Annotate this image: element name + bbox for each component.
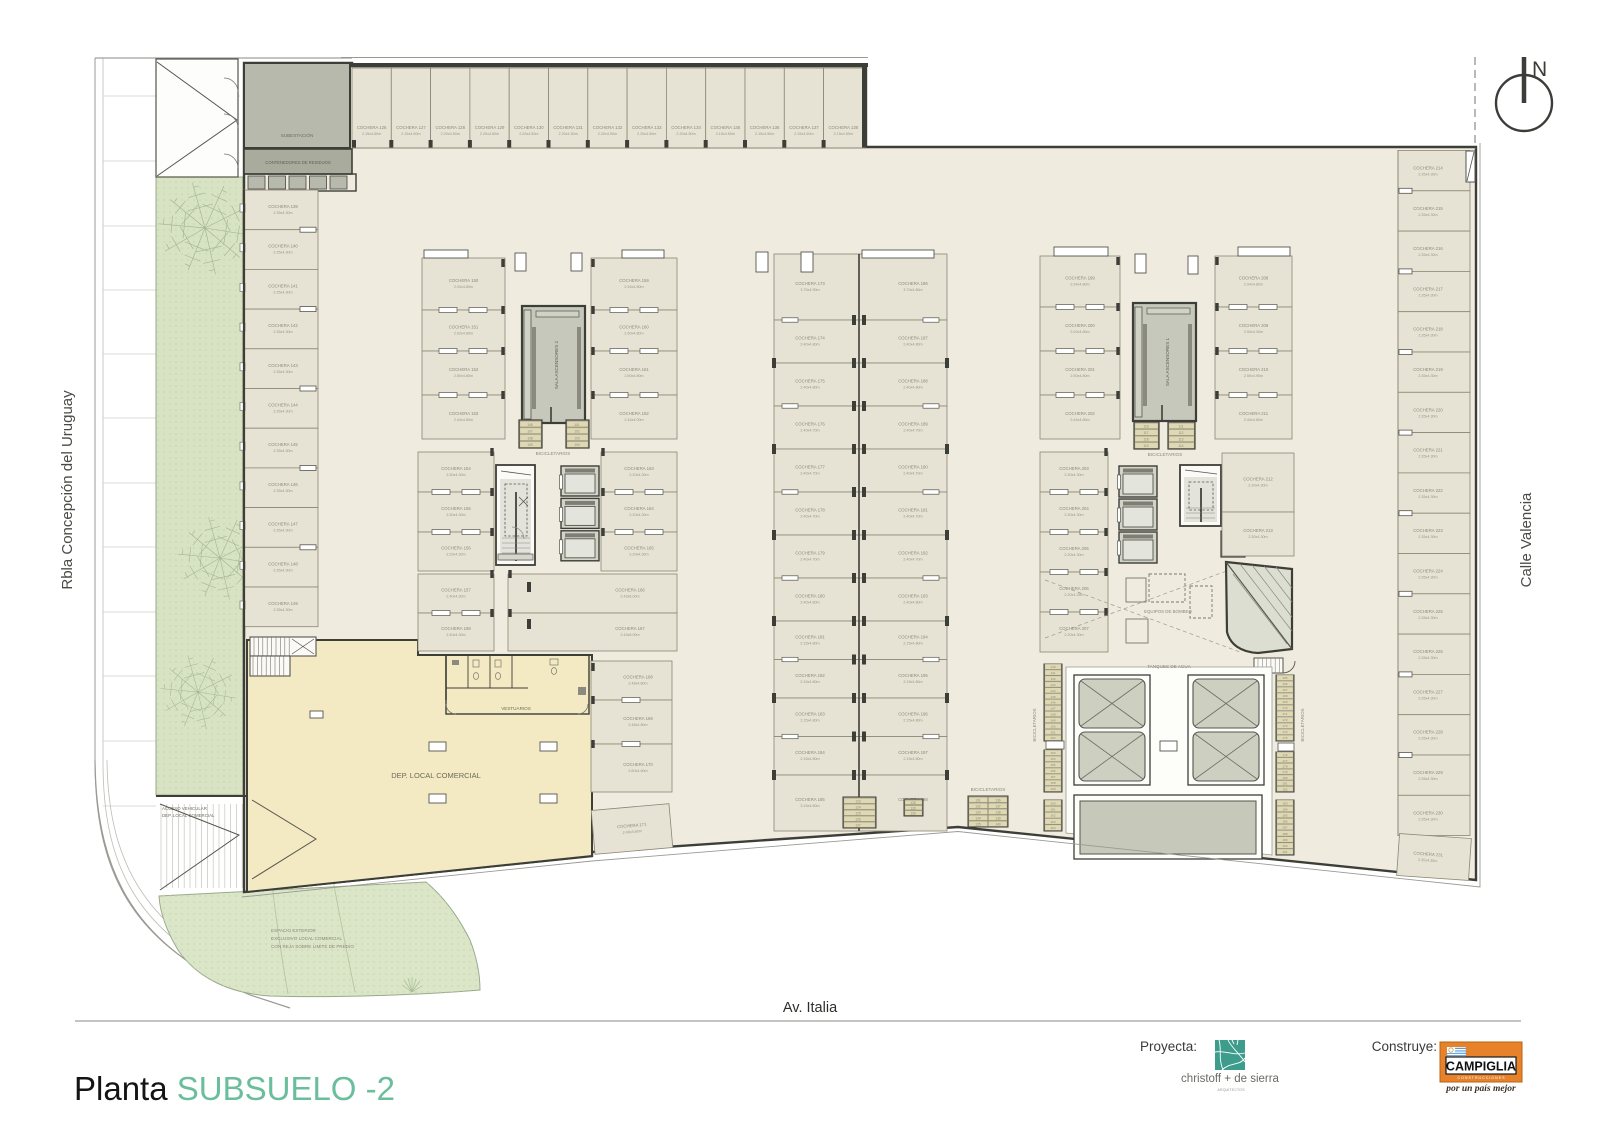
svg-text:159: 159 [1050, 787, 1055, 791]
svg-text:COCHERA 194: COCHERA 194 [898, 634, 928, 639]
svg-text:2.44x4.80m: 2.44x4.80m [454, 418, 473, 422]
svg-text:2.30x4.30m: 2.30x4.30m [1248, 484, 1267, 488]
svg-text:141: 141 [1050, 671, 1055, 675]
svg-text:COCHERA 138: COCHERA 138 [828, 125, 858, 130]
svg-text:2.35x4.30m: 2.35x4.30m [1418, 414, 1437, 418]
svg-text:COCHERA 185: COCHERA 185 [795, 797, 825, 802]
svg-text:COCHERA 187: COCHERA 187 [898, 336, 928, 341]
svg-text:177: 177 [1282, 759, 1287, 763]
svg-text:Av. Italia: Av. Italia [783, 1000, 838, 1016]
svg-text:COCHERA 192: COCHERA 192 [898, 551, 928, 556]
svg-text:DEP. LOCAL COMERCIAL: DEP. LOCAL COMERCIAL [162, 813, 215, 818]
svg-text:2.15x4.80m: 2.15x4.80m [800, 680, 819, 684]
svg-text:2.35x4.30m: 2.35x4.30m [273, 608, 292, 612]
svg-text:130: 130 [910, 812, 916, 816]
svg-text:BICICLETARIOS: BICICLETARIOS [1300, 708, 1305, 741]
svg-text:COCHERA 184: COCHERA 184 [795, 750, 825, 755]
svg-text:2.50x4.80m: 2.50x4.80m [624, 374, 643, 378]
svg-text:SALA ASCENSORES 2: SALA ASCENSORES 2 [554, 340, 559, 389]
svg-text:SALA ASCENSORES 1: SALA ASCENSORES 1 [1165, 337, 1170, 386]
svg-text:2.35x4.30m: 2.35x4.30m [1418, 455, 1437, 459]
svg-text:2.15x4.50m: 2.15x4.50m [362, 132, 381, 136]
svg-text:2.60x4.60m: 2.60x4.60m [628, 769, 647, 773]
svg-text:COCHERA 190: COCHERA 190 [898, 465, 928, 470]
svg-text:COCHERA 217: COCHERA 217 [1413, 286, 1443, 291]
svg-text:2.40x4.30m: 2.40x4.30m [446, 633, 465, 637]
svg-text:2.43x6.00m: 2.43x6.00m [620, 633, 639, 637]
svg-text:COCHERA 220: COCHERA 220 [1413, 407, 1443, 412]
svg-text:COCHERA 197: COCHERA 197 [898, 750, 928, 755]
svg-text:148: 148 [1050, 713, 1055, 717]
svg-text:COCHERA 206: COCHERA 206 [1059, 586, 1089, 591]
svg-text:EQUIPOS DE BOMBEO: EQUIPOS DE BOMBEO [1144, 609, 1192, 614]
svg-text:2.35x4.30m: 2.35x4.30m [273, 568, 292, 572]
svg-text:2.44x4.00m: 2.44x4.00m [624, 418, 643, 422]
svg-text:2.94x4.80m: 2.94x4.80m [454, 285, 473, 289]
svg-text:135: 135 [975, 822, 981, 826]
svg-text:COCHERA 178: COCHERA 178 [795, 508, 825, 513]
svg-text:COCHERA 161: COCHERA 161 [619, 367, 649, 372]
svg-text:2.50x4.30m: 2.50x4.30m [1244, 330, 1263, 334]
svg-text:COCHERA 129: COCHERA 129 [475, 125, 505, 130]
svg-text:109: 109 [527, 443, 533, 447]
svg-text:COCHERA 183: COCHERA 183 [795, 711, 825, 716]
svg-text:2.20x4.50m: 2.20x4.50m [676, 132, 695, 136]
svg-text:2.15x4.50m: 2.15x4.50m [401, 132, 420, 136]
svg-text:175: 175 [1282, 736, 1287, 740]
svg-text:COCHERA 193: COCHERA 193 [898, 594, 928, 599]
svg-text:133: 133 [975, 810, 981, 814]
svg-text:COCHERA 212: COCHERA 212 [1243, 477, 1273, 482]
svg-text:COCHERA 126: COCHERA 126 [357, 125, 387, 130]
svg-text:171: 171 [1282, 712, 1287, 716]
svg-text:COCHERA 131: COCHERA 131 [553, 125, 583, 130]
svg-text:2.30x4.30m: 2.30x4.30m [446, 513, 465, 517]
svg-text:2.40x4.30m: 2.40x4.30m [446, 595, 465, 599]
svg-text:137: 137 [995, 804, 1001, 808]
svg-text:COCHERA 166: COCHERA 166 [615, 588, 645, 593]
svg-text:2.35x4.30m: 2.35x4.30m [1418, 374, 1437, 378]
svg-text:149: 149 [1050, 719, 1055, 723]
svg-text:107: 107 [527, 430, 533, 434]
svg-text:COCHERA 199: COCHERA 199 [1065, 276, 1095, 281]
svg-text:2.20x4.30m: 2.20x4.30m [629, 553, 648, 557]
svg-text:COCHERA 177: COCHERA 177 [795, 465, 825, 470]
svg-text:BICICLETARIOS: BICICLETARIOS [1148, 452, 1183, 457]
svg-text:CON REJA SOBRE LIMITE DE PREDI: CON REJA SOBRE LIMITE DE PREDIO [271, 944, 354, 949]
svg-text:COCHERA 141: COCHERA 141 [268, 283, 298, 288]
svg-text:COCHERA 207: COCHERA 207 [1059, 626, 1089, 631]
svg-text:182: 182 [1282, 787, 1287, 791]
svg-text:191: 191 [1282, 850, 1287, 854]
svg-text:2.20x4.50m: 2.20x4.50m [519, 132, 538, 136]
svg-text:2.15x4.50m: 2.15x4.50m [794, 132, 813, 136]
svg-text:2.43x6.00m: 2.43x6.00m [620, 595, 639, 599]
svg-text:COCHERA 218: COCHERA 218 [1413, 327, 1443, 332]
svg-text:140: 140 [995, 822, 1001, 826]
svg-text:185: 185 [1282, 814, 1287, 818]
svg-text:COCHERA 145: COCHERA 145 [268, 442, 298, 447]
svg-text:COCHERA 148: COCHERA 148 [268, 561, 298, 566]
svg-text:2.20x4.50m: 2.20x4.50m [559, 132, 578, 136]
svg-text:2.35x4.30m: 2.35x4.30m [1418, 656, 1437, 660]
svg-text:151: 151 [1050, 730, 1055, 734]
svg-text:2.15x4.80m: 2.15x4.80m [903, 757, 922, 761]
svg-text:2.35x4.30m: 2.35x4.30m [1418, 495, 1437, 499]
svg-text:2.35x4.30m: 2.35x4.30m [273, 211, 292, 215]
svg-text:2.48x4.80m: 2.48x4.80m [628, 682, 647, 686]
svg-text:2.40x4.70m: 2.40x4.70m [800, 472, 819, 476]
svg-text:124: 124 [855, 805, 861, 809]
svg-text:Planta SUBSUELO -2: Planta SUBSUELO -2 [74, 1070, 395, 1107]
svg-text:CAMPIGLIA: CAMPIGLIA [1446, 1060, 1516, 1074]
svg-text:172: 172 [1282, 718, 1287, 722]
svg-text:2.20x4.50m: 2.20x4.50m [598, 132, 617, 136]
svg-text:2.40x4.80m: 2.40x4.80m [903, 343, 922, 347]
svg-text:VESTUARIOS: VESTUARIOS [501, 706, 531, 711]
svg-text:COCHERA 215: COCHERA 215 [1413, 206, 1443, 211]
svg-text:2.50x4.80m: 2.50x4.80m [454, 374, 473, 378]
svg-text:COCHERA 175: COCHERA 175 [795, 379, 825, 384]
svg-text:2.30x4.30m: 2.30x4.30m [1248, 535, 1267, 539]
svg-text:2.40x4.70m: 2.40x4.70m [903, 472, 922, 476]
svg-text:2.35x4.30m: 2.35x4.30m [1418, 173, 1437, 177]
svg-text:COCHERA 203: COCHERA 203 [1059, 466, 1089, 471]
svg-text:por un país mejor: por un país mejor [1445, 1084, 1516, 1094]
svg-text:COCHERA 186: COCHERA 186 [898, 281, 928, 286]
svg-text:2.40x4.70m: 2.40x4.70m [800, 429, 819, 433]
svg-text:2.20x4.50m: 2.20x4.50m [441, 132, 460, 136]
svg-text:161: 161 [1050, 808, 1055, 812]
svg-text:187: 187 [1282, 826, 1287, 830]
svg-text:COCHERA 226: COCHERA 226 [1413, 649, 1443, 654]
svg-text:150: 150 [1050, 724, 1055, 728]
svg-text:2.40x4.70m: 2.40x4.70m [903, 429, 922, 433]
svg-text:179: 179 [1282, 770, 1287, 774]
svg-text:COCHERA 219: COCHERA 219 [1413, 367, 1443, 372]
svg-text:152: 152 [1050, 736, 1055, 740]
svg-text:101: 101 [574, 423, 580, 427]
svg-text:2.20x4.30m: 2.20x4.30m [629, 473, 648, 477]
svg-text:3.15x4.80m: 3.15x4.80m [800, 804, 819, 808]
svg-text:180: 180 [1282, 776, 1287, 780]
svg-text:COCHERA 200: COCHERA 200 [1065, 323, 1095, 328]
svg-text:COCHERA 139: COCHERA 139 [268, 204, 298, 209]
svg-text:COCHERA 130: COCHERA 130 [514, 125, 544, 130]
svg-text:COCHERA 152: COCHERA 152 [449, 367, 479, 372]
svg-text:COCHERA 143: COCHERA 143 [268, 363, 298, 368]
svg-text:155: 155 [1050, 763, 1055, 767]
svg-text:167: 167 [1282, 688, 1287, 692]
svg-text:COCHERA 159: COCHERA 159 [619, 278, 649, 283]
svg-text:COCHERA 134: COCHERA 134 [671, 125, 701, 130]
svg-text:COCHERA 162: COCHERA 162 [619, 411, 649, 416]
svg-text:COCHERA 179: COCHERA 179 [795, 551, 825, 556]
svg-text:COCHERA 209: COCHERA 209 [1239, 323, 1269, 328]
svg-text:COCHERA 182: COCHERA 182 [795, 673, 825, 678]
svg-text:COCHERA 150: COCHERA 150 [449, 278, 479, 283]
svg-text:2.20x4.30m: 2.20x4.30m [1064, 633, 1083, 637]
svg-text:168: 168 [1282, 694, 1287, 698]
svg-text:111: 111 [1179, 425, 1184, 429]
svg-text:EXCLUSIVO LOCAL COMERCIAL: EXCLUSIVO LOCAL COMERCIAL [271, 936, 342, 941]
svg-text:SUBESTACIÓN: SUBESTACIÓN [281, 132, 314, 138]
svg-text:108: 108 [527, 436, 533, 440]
svg-text:COCHERA 205: COCHERA 205 [1059, 546, 1089, 551]
svg-text:COCHERA 222: COCHERA 222 [1413, 488, 1443, 493]
svg-text:163: 163 [1050, 820, 1055, 824]
svg-text:COCHERA 228: COCHERA 228 [1413, 730, 1443, 735]
svg-text:COCHERA 210: COCHERA 210 [1239, 367, 1269, 372]
svg-text:COCHERA 155: COCHERA 155 [441, 506, 471, 511]
svg-text:COCHERA 146: COCHERA 146 [268, 482, 298, 487]
svg-text:156: 156 [1050, 769, 1055, 773]
svg-text:188: 188 [1282, 832, 1287, 836]
svg-text:COCHERA 195: COCHERA 195 [898, 673, 928, 678]
svg-text:2.15x4.80m: 2.15x4.80m [903, 680, 922, 684]
svg-text:117: 117 [1143, 431, 1148, 435]
svg-text:COCHERA 147: COCHERA 147 [268, 522, 298, 527]
svg-text:127: 127 [855, 823, 861, 827]
svg-text:119: 119 [1143, 444, 1148, 448]
svg-text:2.35x4.30m: 2.35x4.30m [1418, 535, 1437, 539]
svg-text:2.20x4.30m: 2.20x4.30m [1064, 553, 1083, 557]
svg-text:145: 145 [1050, 695, 1055, 699]
svg-text:christoff + de sierra: christoff + de sierra [1181, 1073, 1280, 1085]
svg-text:2.40x4.80m: 2.40x4.80m [800, 343, 819, 347]
svg-text:CONTENEDORES DE RESIDUOS: CONTENEDORES DE RESIDUOS [265, 160, 331, 165]
svg-text:COCHERA 208: COCHERA 208 [1239, 276, 1269, 281]
svg-text:COCHERA 165: COCHERA 165 [624, 546, 654, 551]
svg-text:113: 113 [1178, 438, 1183, 442]
svg-text:BICICLETARIOS: BICICLETARIOS [536, 451, 571, 456]
svg-text:2.20x4.26m: 2.20x4.26m [1064, 593, 1083, 597]
svg-text:COCHERA 168: COCHERA 168 [623, 675, 653, 680]
svg-text:COCHERA 204: COCHERA 204 [1059, 506, 1089, 511]
svg-text:138: 138 [995, 810, 1001, 814]
svg-text:2.35x4.30m: 2.35x4.30m [1418, 213, 1437, 217]
svg-text:COCHERA 144: COCHERA 144 [268, 403, 298, 408]
svg-text:COCHERA 169: COCHERA 169 [623, 716, 653, 721]
svg-text:2.35x4.30m: 2.35x4.30m [273, 449, 292, 453]
svg-text:136: 136 [995, 798, 1001, 802]
svg-text:COCHERA 151: COCHERA 151 [449, 325, 479, 330]
svg-text:COCHERA 142: COCHERA 142 [268, 323, 298, 328]
svg-text:139: 139 [995, 816, 1001, 820]
svg-text:COCHERA 133: COCHERA 133 [632, 125, 662, 130]
svg-text:146: 146 [1050, 701, 1055, 705]
svg-text:3.70x4.80m: 3.70x4.80m [903, 288, 922, 292]
svg-text:COCHERA 216: COCHERA 216 [1413, 246, 1443, 251]
svg-text:2.15x4.50m: 2.15x4.50m [755, 132, 774, 136]
svg-text:2.40x4.70m: 2.40x4.70m [800, 558, 819, 562]
svg-text:2.94x4.80m: 2.94x4.80m [1244, 283, 1263, 287]
svg-text:COCHERA 156: COCHERA 156 [441, 546, 471, 551]
svg-text:COCHERA 127: COCHERA 127 [396, 125, 426, 130]
svg-text:2.35x4.30m: 2.35x4.30m [273, 370, 292, 374]
svg-text:2.44x4.80m: 2.44x4.80m [1244, 418, 1263, 422]
svg-text:2.02x4.80m: 2.02x4.80m [1070, 330, 1089, 334]
svg-text:2.35x4.30m: 2.35x4.30m [1418, 817, 1437, 821]
svg-text:164: 164 [1050, 826, 1055, 830]
svg-text:2.35x4.30m: 2.35x4.30m [1418, 777, 1437, 781]
svg-text:2.35x4.30m: 2.35x4.30m [273, 410, 292, 414]
svg-text:2.50x4.90m: 2.50x4.90m [1244, 374, 1263, 378]
svg-text:2.35x4.30m: 2.35x4.30m [273, 330, 292, 334]
svg-text:COCHERA 137: COCHERA 137 [789, 125, 819, 130]
svg-text:COCHERA 180: COCHERA 180 [795, 594, 825, 599]
svg-text:2.40x4.70m: 2.40x4.70m [903, 515, 922, 519]
svg-text:106: 106 [527, 423, 533, 427]
svg-text:2.15x4.80m: 2.15x4.80m [800, 641, 819, 645]
svg-text:125: 125 [855, 811, 861, 815]
svg-text:2.15x4.80m: 2.15x4.80m [903, 718, 922, 722]
svg-text:COCHERA 158: COCHERA 158 [441, 626, 471, 631]
svg-text:COCHERA 225: COCHERA 225 [1413, 609, 1443, 614]
svg-text:BICICLETARIOS: BICICLETARIOS [1032, 708, 1037, 741]
svg-text:2.30x4.30m: 2.30x4.30m [1064, 513, 1083, 517]
svg-text:COCHERA 128: COCHERA 128 [435, 125, 465, 130]
svg-text:2.50x4.80m: 2.50x4.80m [1070, 374, 1089, 378]
svg-text:2.35x4.30m: 2.35x4.30m [1418, 616, 1437, 620]
svg-text:ACCESO VEHICULAR: ACCESO VEHICULAR [162, 806, 207, 811]
svg-text:COCHERA 135: COCHERA 135 [711, 125, 741, 130]
svg-text:112: 112 [1178, 431, 1183, 435]
svg-text:116: 116 [1143, 425, 1148, 429]
svg-text:2.35x4.30m: 2.35x4.30m [1418, 737, 1437, 741]
svg-text:2.35x4.30m: 2.35x4.30m [273, 290, 292, 294]
svg-text:COCHERA 132: COCHERA 132 [593, 125, 623, 130]
svg-text:104: 104 [574, 443, 580, 447]
svg-text:COCHERA 191: COCHERA 191 [898, 508, 928, 513]
svg-text:2.15x4.80m: 2.15x4.80m [903, 641, 922, 645]
svg-text:2.94x4.80m: 2.94x4.80m [624, 285, 643, 289]
svg-text:174: 174 [1282, 730, 1287, 734]
svg-text:134: 134 [975, 816, 981, 820]
svg-text:N: N [1532, 58, 1547, 81]
svg-text:2.40x4.70m: 2.40x4.70m [903, 558, 922, 562]
svg-text:173: 173 [1282, 724, 1287, 728]
svg-text:TANQUES DE AGUA: TANQUES DE AGUA [1147, 664, 1191, 669]
svg-text:COCHERA 229: COCHERA 229 [1413, 770, 1443, 775]
svg-text:2.40x4.70m: 2.40x4.70m [800, 515, 819, 519]
svg-text:COCHERA 202: COCHERA 202 [1065, 411, 1095, 416]
svg-text:Construye:: Construye: [1372, 1039, 1437, 1054]
svg-text:103: 103 [574, 436, 580, 440]
svg-text:166: 166 [1282, 682, 1287, 686]
svg-text:132: 132 [975, 804, 981, 808]
svg-text:165: 165 [1282, 676, 1287, 680]
svg-text:COCHERA 221: COCHERA 221 [1413, 448, 1443, 453]
svg-text:142: 142 [1050, 677, 1055, 681]
svg-text:COCHERA 157: COCHERA 157 [441, 588, 471, 593]
svg-text:2.30x4.30m: 2.30x4.30m [1064, 473, 1083, 477]
svg-text:COCHERA 227: COCHERA 227 [1413, 689, 1443, 694]
svg-text:190: 190 [1282, 844, 1287, 848]
svg-text:186: 186 [1282, 820, 1287, 824]
svg-text:COCHERA 140: COCHERA 140 [268, 244, 298, 249]
svg-text:COCHERA 196: COCHERA 196 [898, 711, 928, 716]
svg-text:176: 176 [1282, 753, 1287, 757]
svg-text:DEP. LOCAL COMERCIAL: DEP. LOCAL COMERCIAL [391, 771, 481, 780]
svg-text:COCHERA 224: COCHERA 224 [1413, 569, 1443, 574]
svg-text:COCHERA 174: COCHERA 174 [795, 336, 825, 341]
svg-text:COCHERA 173: COCHERA 173 [795, 281, 825, 286]
svg-text:162: 162 [1050, 814, 1055, 818]
svg-text:118: 118 [1143, 438, 1148, 442]
svg-text:189: 189 [1282, 838, 1287, 842]
svg-text:ESPACIO EXTERIOR: ESPACIO EXTERIOR [271, 928, 317, 933]
svg-text:140: 140 [1050, 665, 1055, 669]
svg-text:169: 169 [1282, 700, 1287, 704]
svg-text:COCHERA 149: COCHERA 149 [268, 601, 298, 606]
svg-text:2.15x4.50m: 2.15x4.50m [834, 132, 853, 136]
svg-text:2.20x4.30m: 2.20x4.30m [446, 553, 465, 557]
svg-text:Proyecta:: Proyecta: [1140, 1039, 1197, 1054]
svg-text:178: 178 [1282, 765, 1287, 769]
svg-text:157: 157 [1050, 775, 1055, 779]
svg-text:COCHERA 188: COCHERA 188 [898, 379, 928, 384]
svg-text:153: 153 [1050, 751, 1055, 755]
svg-text:2.48x4.80m: 2.48x4.80m [628, 723, 647, 727]
svg-text:COCHERA 181: COCHERA 181 [795, 634, 825, 639]
svg-text:2.40x4.80m: 2.40x4.80m [800, 386, 819, 390]
svg-text:2.35x4.30m: 2.35x4.30m [1418, 293, 1437, 297]
svg-text:COCHERA 223: COCHERA 223 [1413, 528, 1443, 533]
svg-text:BICICLETARIOS: BICICLETARIOS [971, 787, 1006, 792]
svg-text:2.40x4.80m: 2.40x4.80m [903, 386, 922, 390]
svg-text:2.15x4.80m: 2.15x4.80m [800, 757, 819, 761]
svg-text:2.35x4.30m: 2.35x4.30m [273, 489, 292, 493]
svg-text:2.35x4.30m: 2.35x4.30m [273, 529, 292, 533]
svg-text:144: 144 [1050, 689, 1055, 693]
svg-text:COCHERA 170: COCHERA 170 [623, 762, 653, 767]
svg-text:128: 128 [910, 801, 916, 805]
svg-text:2.02x4.80m: 2.02x4.80m [454, 332, 473, 336]
svg-text:2.35x4.30m: 2.35x4.30m [1418, 334, 1437, 338]
svg-text:COCHERA 163: COCHERA 163 [624, 466, 654, 471]
svg-text:COCHERA 160: COCHERA 160 [619, 325, 649, 330]
svg-text:184: 184 [1282, 807, 1287, 811]
svg-text:C O N S T R U C C I O N E S: C O N S T R U C C I O N E S [1458, 1076, 1506, 1080]
svg-text:2.94x4.80m: 2.94x4.80m [1070, 283, 1089, 287]
svg-text:131: 131 [975, 798, 981, 802]
svg-text:147: 147 [1050, 707, 1055, 711]
svg-text:154: 154 [1050, 757, 1055, 761]
svg-text:2.30x4.30m: 2.30x4.30m [446, 473, 465, 477]
svg-text:COCHERA 201: COCHERA 201 [1065, 367, 1095, 372]
svg-text:170: 170 [1282, 706, 1287, 710]
svg-text:COCHERA 230: COCHERA 230 [1413, 810, 1443, 815]
svg-text:COCHERA 189: COCHERA 189 [898, 422, 928, 427]
svg-text:COCHERA 167: COCHERA 167 [615, 626, 645, 631]
svg-text:COCHERA 136: COCHERA 136 [750, 125, 780, 130]
svg-text:ARQUITECTOS: ARQUITECTOS [1217, 1088, 1245, 1092]
svg-text:2.40x4.80m: 2.40x4.80m [903, 601, 922, 605]
svg-text:2.15x4.50m: 2.15x4.50m [716, 132, 735, 136]
svg-text:3.70x4.90m: 3.70x4.90m [800, 288, 819, 292]
svg-text:123: 123 [855, 799, 861, 803]
svg-text:COCHERA 176: COCHERA 176 [795, 422, 825, 427]
svg-text:129: 129 [910, 806, 916, 810]
svg-text:2.15x4.80m: 2.15x4.80m [800, 718, 819, 722]
svg-text:2.35x4.30m: 2.35x4.30m [1418, 576, 1437, 580]
svg-text:2.20x4.50m: 2.20x4.50m [480, 132, 499, 136]
svg-text:Calle Valencia: Calle Valencia [1518, 492, 1535, 587]
svg-text:2.35x4.30m: 2.35x4.30m [1418, 253, 1437, 257]
svg-text:160: 160 [1050, 801, 1055, 805]
svg-text:2.44x4.80m: 2.44x4.80m [1070, 418, 1089, 422]
